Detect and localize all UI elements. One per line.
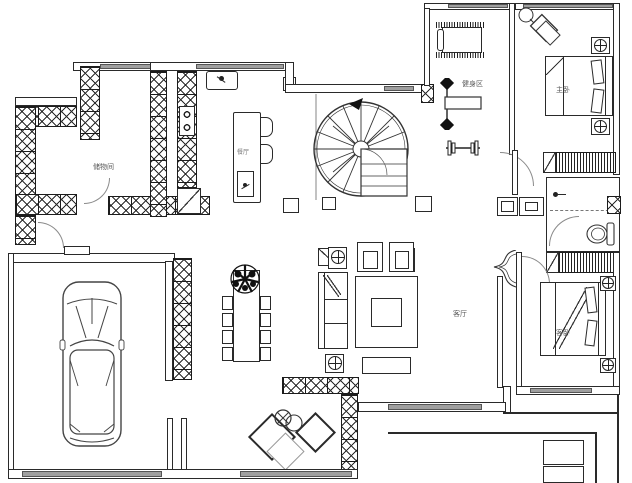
wall-segment (424, 8, 430, 86)
shower-divider (550, 210, 614, 213)
wall-notch (64, 246, 90, 255)
wall-segment (181, 418, 187, 474)
column-run (80, 66, 100, 140)
window (196, 64, 284, 69)
wall-hatched (282, 377, 359, 394)
terrace-step (543, 440, 584, 465)
wall-segment (8, 253, 14, 479)
building-outline (617, 395, 619, 483)
bar-chair (260, 117, 273, 137)
stool (283, 198, 299, 213)
kitchen-cabinet (177, 188, 201, 214)
door-swing (84, 178, 110, 204)
kitchen-counter-run (150, 71, 167, 217)
car-top-view-icon (58, 276, 126, 452)
dining-chair (260, 296, 271, 310)
shower-arm (557, 194, 566, 195)
dining-chair (260, 313, 271, 327)
plant-icon (228, 262, 262, 296)
closet-run (15, 194, 77, 215)
wall-segment (13, 253, 175, 263)
wall-segment (512, 150, 518, 195)
window (240, 471, 352, 477)
window (448, 4, 508, 8)
terrace-edge (388, 432, 597, 434)
dining-chair (260, 330, 271, 344)
dining-chair (222, 296, 233, 310)
room-label-master-bedroom: 主卧 (556, 87, 570, 95)
dining-chair (222, 330, 233, 344)
wall-segment (165, 261, 173, 381)
room-label-storage: 储物间 (93, 164, 114, 172)
shelf-unit (497, 197, 518, 216)
dining-chair (260, 347, 271, 361)
wash-basin-icon (519, 197, 544, 216)
bench (362, 357, 411, 374)
room-label-gym: 健身区 (462, 81, 483, 89)
terrace-edge (595, 432, 597, 483)
vanity-mirror-icon (517, 6, 565, 54)
room-label-guest-bedroom: 客卧 (556, 330, 570, 338)
bed-headboard (598, 282, 606, 356)
floor-plan-canvas: 储物间 餐厅 (0, 0, 632, 483)
room-label-living-room: 客厅 (453, 311, 467, 319)
door-swing (38, 222, 64, 248)
window (388, 404, 482, 410)
lamp-icon (594, 120, 607, 133)
terrace-step (543, 466, 584, 483)
wardrobe-end (543, 152, 556, 173)
room-label-dining: 餐厅 (237, 149, 249, 157)
garage-door-band (22, 471, 162, 477)
dining-chair (222, 313, 233, 327)
lamp-icon (602, 277, 614, 289)
wall-segment (613, 252, 620, 395)
floor-box (322, 197, 336, 210)
barbell-icon (444, 138, 482, 158)
treadmill-icon (434, 22, 487, 58)
spiral-staircase-icon (303, 92, 425, 206)
lamp-icon (331, 250, 345, 264)
bed-headboard (605, 56, 613, 116)
window (384, 86, 414, 91)
column-box (415, 196, 432, 212)
toilet-icon (584, 219, 616, 249)
wall-segment (497, 276, 503, 388)
wall-segment (613, 3, 620, 175)
stove-icon (179, 106, 195, 136)
dining-chair (222, 347, 233, 361)
armchair (389, 242, 414, 272)
building-outline (503, 412, 619, 414)
corbel-ornament-icon (490, 250, 518, 288)
window (530, 388, 592, 393)
armchair (357, 242, 383, 272)
wall-segment (15, 97, 77, 106)
sofa-icon (318, 272, 348, 349)
wall-segment (167, 418, 173, 474)
coffee-table (355, 276, 418, 348)
wardrobe-end (546, 252, 559, 273)
wall-hatched (341, 394, 358, 478)
column-run (15, 215, 36, 245)
column (607, 196, 621, 214)
column-run (173, 258, 192, 380)
wall-segment (509, 3, 515, 155)
round-table-icon (274, 409, 304, 435)
lamp-icon (328, 356, 342, 370)
lamp-icon (602, 359, 614, 371)
bar-chair (260, 144, 273, 164)
lamp-icon (594, 39, 607, 52)
